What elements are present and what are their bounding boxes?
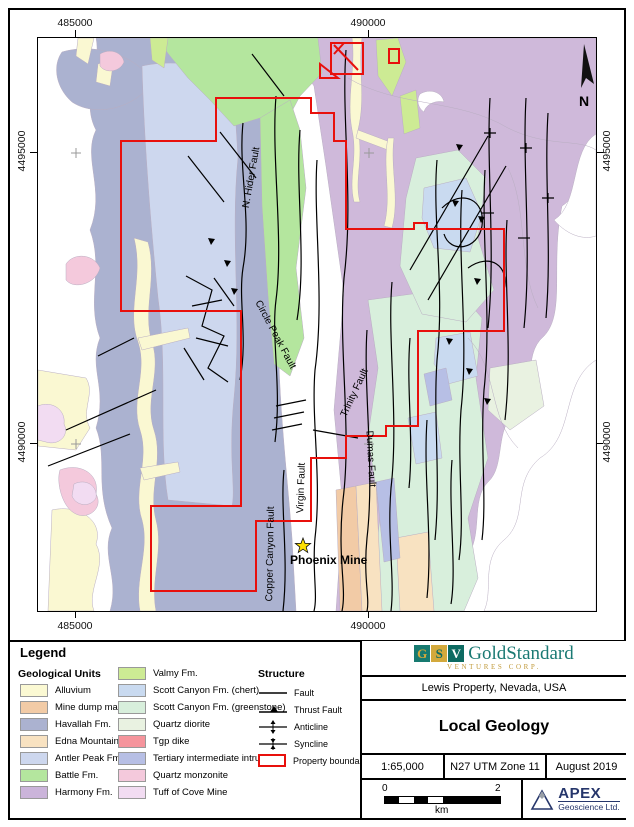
legend-unit-row: Tgp dike xyxy=(118,735,189,748)
structure-label: Fault xyxy=(294,688,314,698)
structure-title: Structure xyxy=(258,668,305,680)
unit-swatch xyxy=(20,752,48,765)
legend-unit-row: Tuff of Cove Mine xyxy=(118,786,227,799)
map-frame: N. Hider Fault Circle Peak Fault Trinity… xyxy=(37,37,597,612)
unit-swatch xyxy=(20,769,48,782)
geology-map: N. Hider Fault Circle Peak Fault Trinity… xyxy=(38,38,596,611)
legend-title: Legend xyxy=(20,645,66,660)
unit-label: Antler Peak Fm. xyxy=(55,753,123,764)
unit-swatch xyxy=(118,701,146,714)
virgin-fault-label: Virgin Fault xyxy=(295,462,308,513)
geology-polygons xyxy=(38,38,596,611)
structure-row-fault: Fault xyxy=(258,686,314,699)
logo-row: G S V GoldStandard VENTURES CORP. xyxy=(362,641,626,677)
structure-label: Property boundary xyxy=(293,756,367,766)
title-block: G S V GoldStandard VENTURES CORP. Lewis … xyxy=(360,641,626,818)
legend-unit-row: Harmony Fm. xyxy=(20,786,113,799)
unit-swatch xyxy=(118,752,146,765)
structure-row-anticline: Anticline xyxy=(258,720,328,733)
unit-swatch xyxy=(118,735,146,748)
map-title: Local Geology xyxy=(439,718,549,736)
unit-label: Tuff of Cove Mine xyxy=(153,787,227,798)
tick xyxy=(596,152,603,153)
unit-swatch xyxy=(118,786,146,799)
coord-bottom-485000: 485000 xyxy=(45,620,105,632)
structure-row-syncline: Syncline xyxy=(258,737,328,750)
unit-label: Battle Fm. xyxy=(55,770,98,781)
date-cell: August 2019 xyxy=(545,755,626,778)
legend-unit-row: Quartz diorite xyxy=(118,718,210,731)
structure-label: Thrust Fault xyxy=(294,705,342,715)
legend-unit-row: Battle Fm. xyxy=(20,769,98,782)
apex-mountain-icon xyxy=(529,787,555,811)
tick xyxy=(368,611,369,618)
date-value: August 2019 xyxy=(556,761,618,773)
scale-cell: 1:65,000 xyxy=(362,755,443,778)
structure-label: Anticline xyxy=(294,722,328,732)
property-row: Lewis Property, Nevada, USA xyxy=(362,677,626,701)
unit-label: Havallah Fm. xyxy=(55,719,111,730)
map-title-row: Local Geology xyxy=(362,701,626,755)
bottom-row: 0 2 km APEX Geoscience Ltd. xyxy=(362,780,626,818)
unit-label: Alluvium xyxy=(55,685,91,696)
unit-swatch xyxy=(118,718,146,731)
syncline-icon xyxy=(258,737,288,751)
coord-top-485000: 485000 xyxy=(45,17,105,29)
gsv-letter-v: V xyxy=(448,645,464,662)
scalebar xyxy=(384,796,501,804)
legend-unit-row: Quartz monzonite xyxy=(118,769,228,782)
phoenix-mine-star xyxy=(295,538,310,552)
gsv-logo: G S V GoldStandard xyxy=(414,645,574,662)
tick xyxy=(596,443,603,444)
unit-label: Harmony Fm. xyxy=(55,787,113,798)
unit-label: Quartz diorite xyxy=(153,719,210,730)
tick xyxy=(368,30,369,37)
geology-map-page: N. Hider Fault Circle Peak Fault Trinity… xyxy=(0,0,634,827)
scalebar-unit: km xyxy=(435,805,448,816)
tick xyxy=(75,611,76,618)
apex-name: APEX xyxy=(558,787,619,801)
property-name: Lewis Property, Nevada, USA xyxy=(422,682,567,694)
scalebar-start: 0 xyxy=(382,783,388,794)
meta-row: 1:65,000 N27 UTM Zone 11 August 2019 xyxy=(362,755,626,780)
unit-swatch xyxy=(20,684,48,697)
coord-right-4490000: 4490000 xyxy=(601,412,613,472)
legend-unit-row: Antler Peak Fm. xyxy=(20,752,123,765)
coord-top-490000: 490000 xyxy=(338,17,398,29)
coord-right-4495000: 4495000 xyxy=(601,121,613,181)
unit-swatch xyxy=(20,701,48,714)
unit-swatch xyxy=(118,684,146,697)
scale-value: 1:65,000 xyxy=(381,761,424,773)
structure-label: Syncline xyxy=(294,739,328,749)
gsv-letter-g: G xyxy=(414,645,430,662)
phoenix-mine-label: Phoenix Mine xyxy=(290,553,368,567)
unit-swatch xyxy=(118,769,146,782)
unit-label: Tgp dike xyxy=(153,736,189,747)
unit-label: Quartz monzonite xyxy=(153,770,228,781)
coord-left-4490000: 4490000 xyxy=(16,412,28,472)
apex-logo-cell: APEX Geoscience Ltd. xyxy=(521,780,626,818)
anticline-icon xyxy=(258,720,288,734)
property-boundary-icon xyxy=(258,754,286,767)
tick xyxy=(30,152,37,153)
gsv-subtitle: VENTURES CORP. xyxy=(414,663,574,671)
legend-unit-row: Valmy Fm. xyxy=(118,667,198,680)
scalebar-end: 2 xyxy=(495,783,501,794)
unit-swatch xyxy=(20,786,48,799)
fault-line-icon xyxy=(258,688,288,698)
legend-unit-row: Alluvium xyxy=(20,684,91,697)
geological-units-title: Geological Units xyxy=(18,668,101,680)
projection-cell: N27 UTM Zone 11 xyxy=(443,755,545,778)
unit-label: Scott Canyon Fm. (chert) xyxy=(153,685,259,696)
apex-subtitle: Geoscience Ltd. xyxy=(558,801,619,812)
projection-value: N27 UTM Zone 11 xyxy=(450,761,540,773)
unit-swatch xyxy=(20,718,48,731)
unit-swatch xyxy=(20,735,48,748)
tick xyxy=(75,30,76,37)
structure-row-property-boundary: Property boundary xyxy=(258,754,367,767)
scalebar-cell: 0 2 km xyxy=(362,780,521,818)
legend-unit-row: Scott Canyon Fm. (chert) xyxy=(118,684,259,697)
coord-left-4495000: 4495000 xyxy=(16,121,28,181)
structure-row-thrust-fault: Thrust Fault xyxy=(258,703,342,716)
tick xyxy=(30,443,37,444)
gsv-letter-s: S xyxy=(431,645,447,662)
thrust-fault-icon xyxy=(258,705,288,715)
gsv-wordmark: GoldStandard xyxy=(468,645,574,662)
north-label: N xyxy=(579,93,589,109)
legend-unit-row: Havallah Fm. xyxy=(20,718,111,731)
legend-unit-row: Tertiary intermediate intrusive xyxy=(118,752,277,765)
unit-swatch xyxy=(118,667,146,680)
unit-label: Valmy Fm. xyxy=(153,668,198,679)
copper-canyon-fault-label: Copper Canyon Fault xyxy=(264,506,277,601)
coord-bottom-490000: 490000 xyxy=(338,620,398,632)
